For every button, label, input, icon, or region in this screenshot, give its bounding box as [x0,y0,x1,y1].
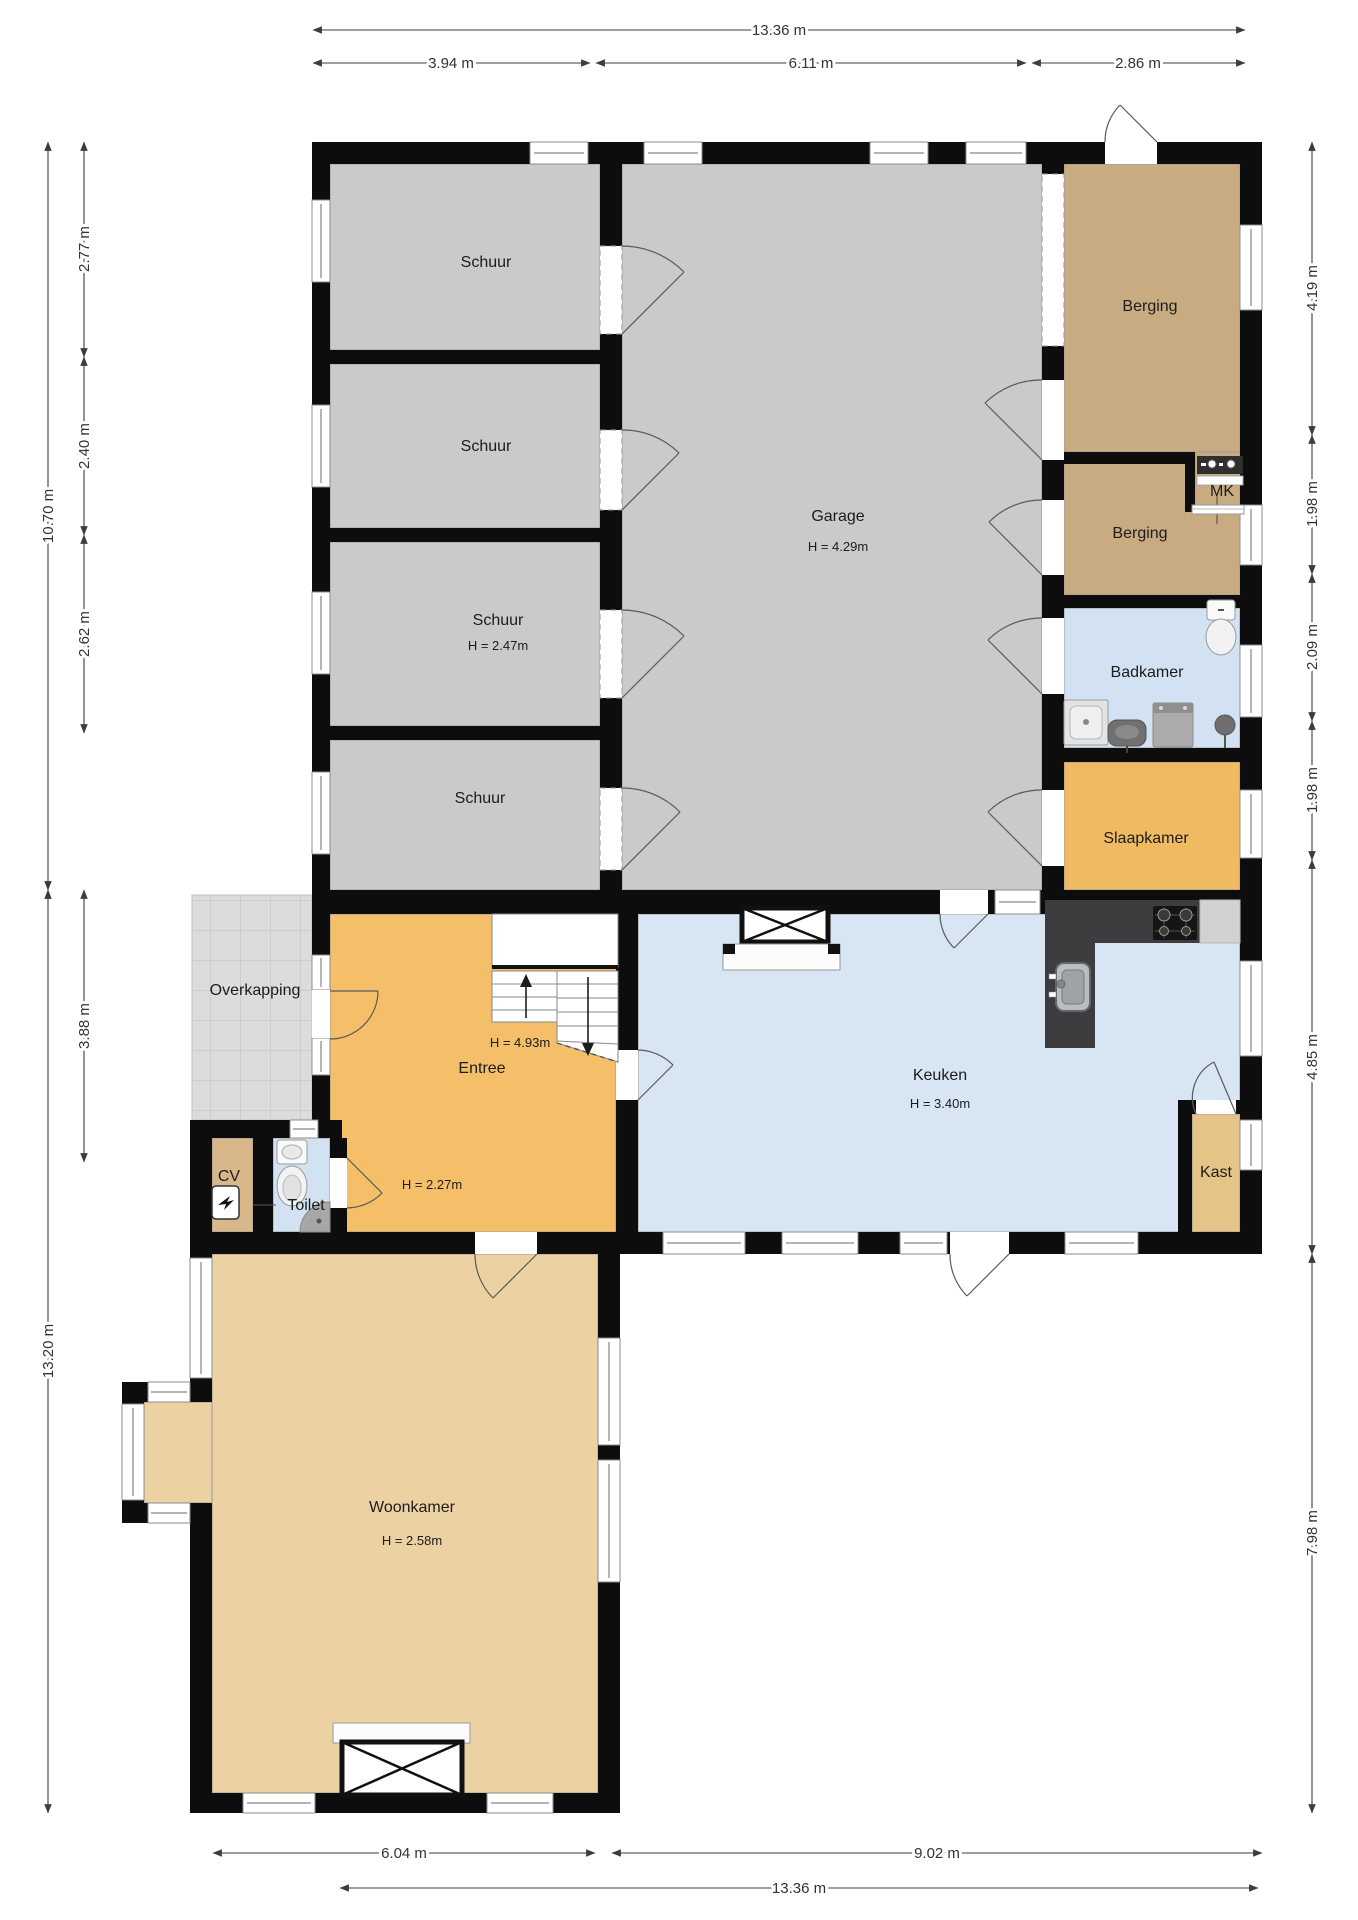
window [530,142,588,164]
window [966,142,1026,164]
window [598,1338,620,1445]
room-label-schuur-1: Schuur [461,254,512,271]
dim-bottom-overall: 13.36 m [340,1880,1258,1897]
window [1240,225,1262,310]
svg-text:9.02 m: 9.02 m [914,1845,960,1862]
room-label-entree: Entree [458,1060,505,1077]
toilet-icon [1206,600,1236,655]
room-garage-floor [622,164,1042,890]
room-label-schuur-2: Schuur [461,438,512,455]
window [1240,790,1262,858]
window [1240,961,1262,1056]
stove-icon [1153,906,1197,940]
dim-right-3: 2.09 m [1304,574,1321,721]
keuken-chimney-icon [723,908,840,970]
window [312,592,330,674]
dim-left-1: 2.77 m [76,142,93,357]
room-label-berging-1: Berging [1122,298,1177,315]
window [312,1038,330,1075]
floor-plan: Schuur Schuur Schuur H = 2.47m Schuur Ga… [0,0,1358,1920]
room-label-keuken: Keuken [913,1067,967,1084]
window [190,1258,212,1378]
svg-text:4.19 m: 4.19 m [1304,265,1321,311]
room-height-schuur-3: H = 2.47m [468,638,528,653]
svg-text:1.98 m: 1.98 m [1304,481,1321,527]
room-schuur-3-floor [330,542,600,726]
svg-text:6.11 m: 6.11 m [789,55,834,72]
svg-text:6.04 m: 6.04 m [381,1845,427,1862]
room-height-woonkamer: H = 2.58m [382,1533,442,1548]
svg-text:1.98 m: 1.98 m [1304,767,1321,813]
window [312,200,330,282]
window [312,772,330,854]
dim-left-3: 2.62 m [76,535,93,733]
dim-right-4: 1.98 m [1304,721,1321,860]
room-label-woonkamer: Woonkamer [369,1499,456,1516]
dim-right-2: 1.98 m [1304,435,1321,574]
room-label-schuur-4: Schuur [455,790,506,807]
room-label-garage: Garage [811,508,864,525]
room-height-keuken: H = 3.40m [910,1096,970,1111]
room-label-slaapkamer: Slaapkamer [1103,830,1189,847]
room-slaapkamer-floor [1064,762,1240,890]
garage-opening-dashed [1042,174,1064,346]
room-height-stairwell: H = 4.93m [490,1035,550,1050]
room-label-cv: CV [218,1168,241,1185]
room-height-garage: H = 4.29m [808,539,868,554]
dim-left-overall-top: 10.70 m [40,142,57,890]
room-schuur-4-floor [330,740,600,890]
kitchen-sink-icon [1049,963,1090,1011]
svg-text:7.98 m: 7.98 m [1304,1510,1321,1556]
svg-text:13.36 m: 13.36 m [772,1880,826,1897]
window [312,955,330,990]
room-label-mk: MK [1210,483,1234,500]
dim-left-2: 2.40 m [76,357,93,535]
window [663,1232,745,1254]
boiler-icon [212,1186,239,1219]
dim-right-1: 4.19 m [1304,142,1321,435]
room-label-berging-2: Berging [1112,525,1167,542]
stair-landing [492,914,618,967]
svg-text:2.77 m: 2.77 m [76,226,93,272]
svg-text:2.09 m: 2.09 m [1304,624,1321,670]
dim-left-4: 3.88 m [76,890,93,1162]
washer-icon [1153,703,1193,747]
room-overkapping-floor [192,895,312,1120]
room-height-entree: H = 2.27m [402,1177,462,1192]
svg-text:13.36 m: 13.36 m [752,22,806,39]
dim-bottom-1: 6.04 m [213,1845,595,1862]
shower-icon [1064,700,1108,745]
svg-text:3.88 m: 3.88 m [76,1003,93,1049]
window [148,1382,190,1402]
window [148,1503,190,1523]
dim-bottom-2: 9.02 m [612,1845,1262,1862]
window [598,1460,620,1582]
dim-left-overall-bottom: 13.20 m [40,890,57,1813]
window [870,142,928,164]
svg-text:13.20 m: 13.20 m [40,1324,57,1378]
window [243,1793,315,1813]
dim-right-5: 4.85 m [1304,860,1321,1254]
window [782,1232,858,1254]
room-woonkamer-bay-floor [144,1402,212,1503]
room-woonkamer-floor [212,1254,598,1793]
svg-text:2.40 m: 2.40 m [76,423,93,469]
window [644,142,702,164]
door-berging-exterior [1105,105,1157,164]
window [995,890,1040,914]
svg-text:10.70 m: 10.70 m [40,489,57,543]
svg-text:4.85 m: 4.85 m [1304,1034,1321,1080]
svg-text:3.94 m: 3.94 m [428,55,474,72]
window [290,1120,318,1138]
room-label-badkamer: Badkamer [1111,664,1185,681]
window [1065,1232,1138,1254]
dim-right-6: 7.98 m [1304,1254,1321,1813]
svg-text:2.86 m: 2.86 m [1115,55,1161,72]
window [487,1793,553,1813]
dim-top-1: 3.94 m [313,55,590,72]
window [1240,1120,1262,1170]
woonkamer-fireplace-icon [333,1723,470,1795]
dim-top-3: 2.86 m [1032,55,1245,72]
window [312,405,330,487]
room-label-schuur-3: Schuur [473,612,524,629]
svg-text:2.62 m: 2.62 m [76,611,93,657]
room-label-toilet: Toilet [287,1197,325,1214]
door-keuken-exterior [950,1232,1009,1296]
window [1240,645,1262,717]
toilet-sink-icon [277,1140,307,1164]
room-label-kast: Kast [1200,1164,1233,1181]
dim-top-overall: 13.36 m [313,22,1245,39]
room-label-overkapping: Overkapping [210,982,301,999]
window [122,1404,144,1500]
window [900,1232,947,1254]
dim-top-2: 6.11 m [596,55,1026,72]
